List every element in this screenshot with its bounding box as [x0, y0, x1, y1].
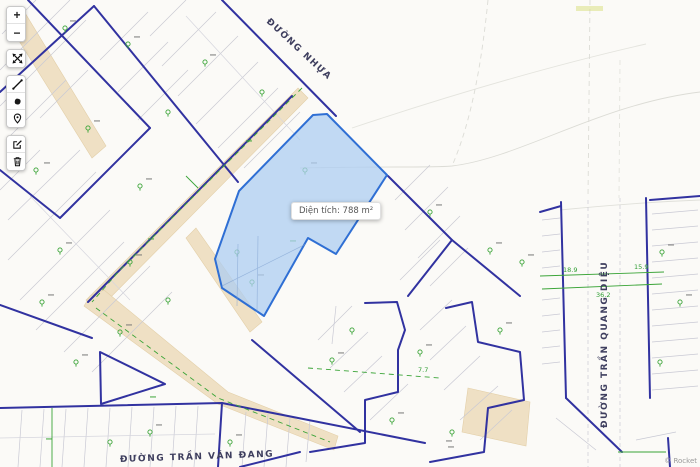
map-canvas[interactable]: ĐƯỜNG NHỰA ĐƯỜNG TRẦN VĂN ĐANG ĐƯỜNG TRẦ… [0, 0, 700, 467]
fullscreen-control [6, 49, 26, 68]
zoom-controls: + − [6, 6, 26, 42]
expand-arrows-icon [12, 53, 23, 64]
ink-blob-icon [12, 96, 23, 107]
faint-area-label [576, 6, 603, 11]
diagonal-line-icon [12, 79, 23, 90]
draw-polygon-button[interactable] [7, 93, 26, 110]
draw-controls [6, 75, 26, 128]
measurement-label: 7.7 [418, 366, 428, 374]
location-pin-icon [12, 113, 23, 124]
zoom-out-button[interactable]: − [7, 24, 26, 41]
measurement-label: 18.9 [563, 266, 577, 274]
map-attribution: © Rocket [664, 457, 697, 465]
minus-icon: − [13, 27, 20, 39]
marker-button[interactable] [7, 110, 26, 127]
map-viewer: ĐƯỜNG NHỰA ĐƯỜNG TRẦN VĂN ĐANG ĐƯỜNG TRẦ… [0, 0, 700, 467]
measurement-label: 15.9 [634, 263, 648, 271]
zoom-in-button[interactable]: + [7, 7, 26, 24]
plus-icon: + [13, 9, 20, 21]
edit-controls [6, 135, 26, 171]
edit-button[interactable] [7, 136, 26, 153]
delete-button[interactable] [7, 153, 26, 170]
measure-line-button[interactable] [7, 76, 26, 93]
fullscreen-button[interactable] [7, 50, 26, 67]
edit-square-icon [12, 139, 23, 150]
map-toolbar: + − [6, 6, 26, 178]
measurement-label: 36.2 [596, 291, 610, 299]
trash-can-icon [12, 156, 23, 167]
area-tooltip: Diện tích: 788 m² [291, 202, 381, 220]
